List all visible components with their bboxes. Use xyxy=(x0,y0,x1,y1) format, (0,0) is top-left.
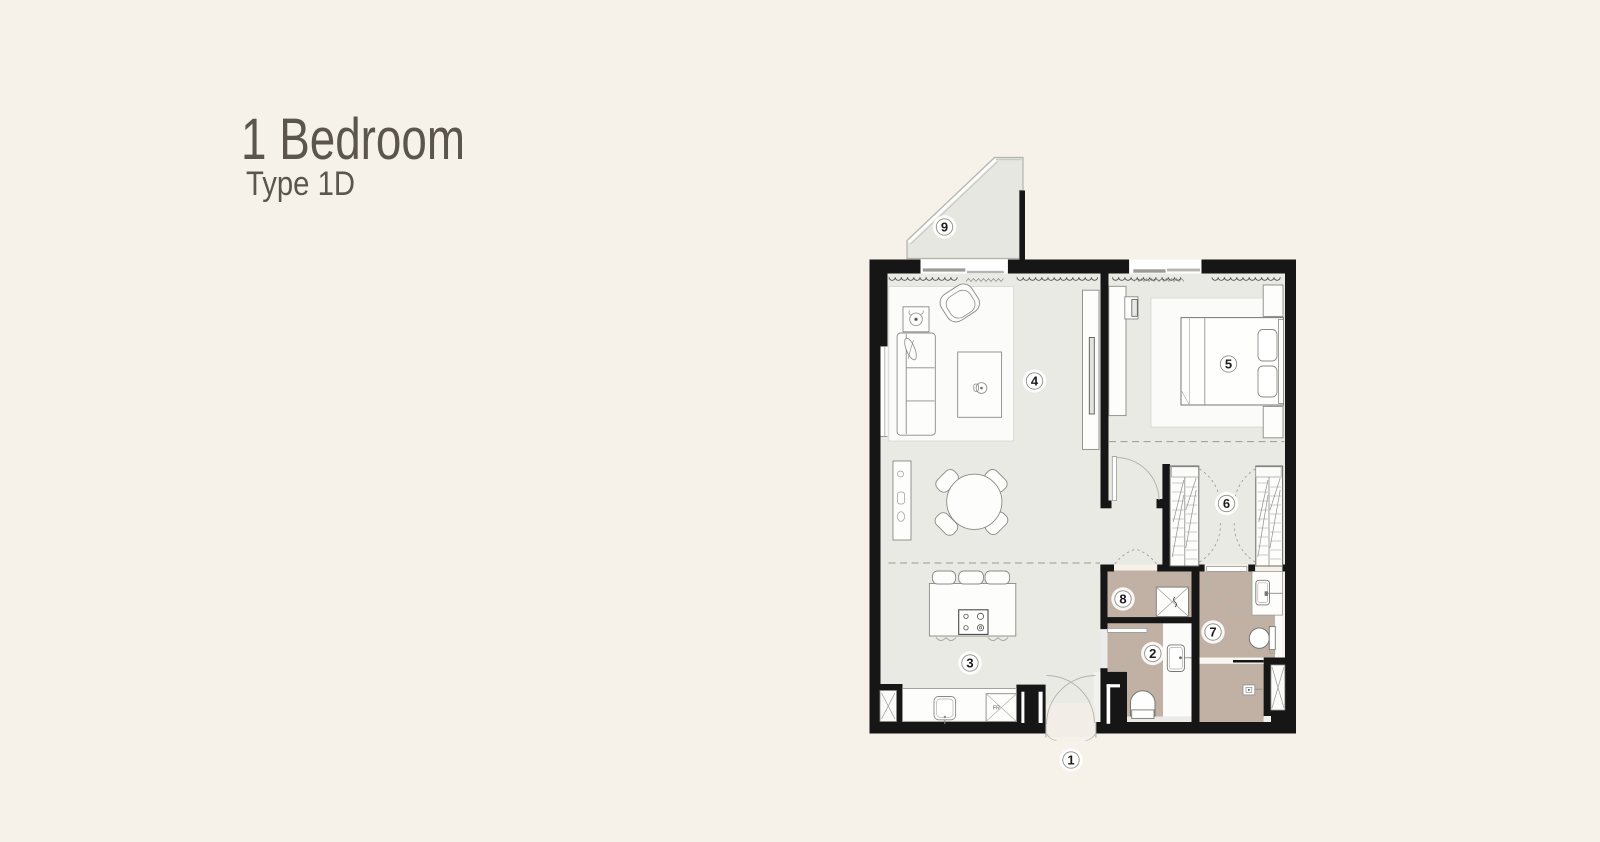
svg-text:5: 5 xyxy=(1225,357,1232,372)
svg-text:1: 1 xyxy=(1067,753,1074,768)
svg-text:9: 9 xyxy=(941,220,948,235)
svg-text:8: 8 xyxy=(1119,592,1126,607)
svg-text:3: 3 xyxy=(966,656,973,671)
svg-text:FR: FR xyxy=(993,706,1000,712)
svg-text:2: 2 xyxy=(1149,646,1156,661)
svg-text:4: 4 xyxy=(1031,374,1039,389)
svg-text:1 Bedroom: 1 Bedroom xyxy=(241,107,465,172)
svg-text:7: 7 xyxy=(1209,625,1216,640)
svg-text:Type 1D: Type 1D xyxy=(246,165,355,203)
svg-text:6: 6 xyxy=(1223,496,1230,511)
